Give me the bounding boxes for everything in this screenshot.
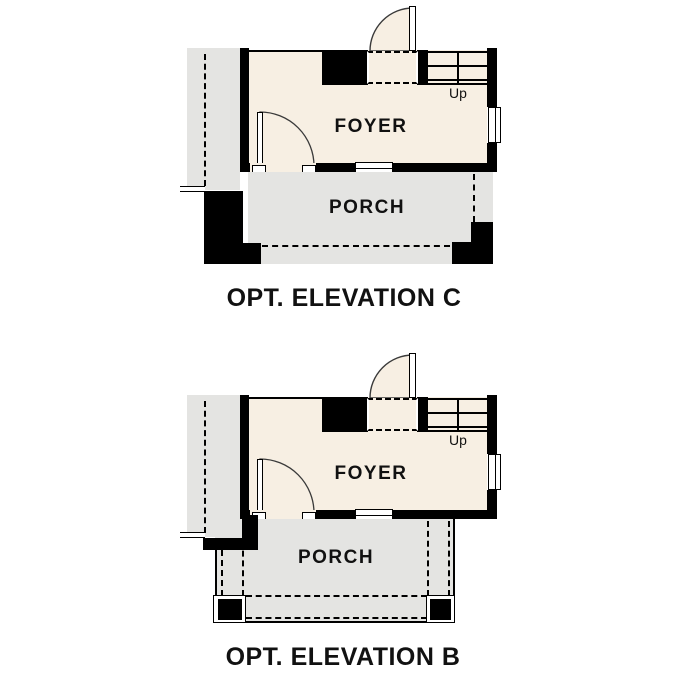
- porch-roof-dashline: [427, 521, 429, 596]
- porch-slab-edge-bottom: [215, 621, 455, 623]
- wall-stair-jamb: [417, 397, 428, 432]
- window-glass-line: [495, 455, 496, 489]
- porch-pier-left: [204, 191, 243, 264]
- plan-elevation-c: Up FOYER PORCH OPT. ELEVATION C: [0, 0, 687, 340]
- porch-pier-left-foot: [243, 243, 261, 264]
- entry-landing: [367, 51, 418, 84]
- porch-roof-dashline: [473, 174, 475, 222]
- porch-roof-dashline: [221, 550, 223, 596]
- foyer-label: FOYER: [300, 463, 442, 485]
- stair-stringer-line: [457, 53, 459, 83]
- porch-column-left: [213, 595, 246, 623]
- foyer-top-edge-line: [240, 397, 324, 399]
- wall-stair-jamb: [417, 50, 428, 85]
- porch-edge-dashline: [246, 617, 427, 619]
- stairs: [428, 51, 487, 85]
- interior-door-leaf: [257, 459, 263, 514]
- foyer-label: FOYER: [300, 116, 442, 138]
- garage-slab: [187, 48, 240, 190]
- right-wall-window: [488, 107, 501, 143]
- stairs-up-label: Up: [443, 85, 473, 101]
- floor-plan-canvas: Up FOYER PORCH OPT. ELEVATION C: [0, 0, 687, 687]
- porch-column-core: [218, 599, 242, 620]
- wall-top-block: [322, 397, 368, 432]
- wall-left: [240, 395, 249, 519]
- porch-column-core: [430, 599, 451, 620]
- porch-column-right: [426, 595, 455, 623]
- window-glass-line: [495, 108, 496, 142]
- porch-roof-dashline: [242, 521, 244, 596]
- garage-slab: [187, 395, 240, 537]
- wall-right-upper: [487, 395, 497, 454]
- entry-landing: [367, 398, 418, 431]
- stair-stringer-line: [457, 400, 459, 430]
- plan-elevation-b: Up FOYER: [0, 347, 687, 687]
- garage-roof-dashline: [204, 401, 206, 533]
- stairs: [428, 398, 487, 432]
- window-glass-line: [356, 168, 392, 169]
- right-wall-window: [488, 454, 501, 490]
- wall-right-upper: [487, 48, 497, 107]
- porch-label: PORCH: [300, 197, 434, 219]
- window-glass-line: [356, 515, 392, 516]
- wall-left: [240, 48, 249, 172]
- garage-edge-marker: [180, 532, 205, 538]
- entry-door-leaf: [409, 6, 416, 51]
- plan-title: OPT. ELEVATION C: [184, 284, 504, 313]
- wall-top-block: [322, 50, 368, 85]
- plan-title: OPT. ELEVATION B: [183, 643, 503, 672]
- porch-pier-right-foot: [452, 242, 471, 264]
- entry-door-leaf: [409, 353, 416, 398]
- wall-step-horizontal: [203, 538, 258, 550]
- stairs-up-label: Up: [443, 432, 473, 448]
- porch-edge-dashline: [262, 245, 450, 247]
- wall-step-vertical: [242, 515, 258, 539]
- porch-label: PORCH: [270, 547, 402, 569]
- foyer-top-edge-line: [240, 50, 324, 52]
- porch-roof-dashline: [448, 521, 450, 596]
- garage-edge-marker: [180, 186, 205, 192]
- porch-edge-dashline: [246, 595, 427, 597]
- porch-pier-right: [471, 222, 493, 264]
- garage-roof-dashline: [204, 54, 206, 186]
- interior-door-leaf: [257, 112, 263, 167]
- porch-step-slab: [260, 246, 452, 264]
